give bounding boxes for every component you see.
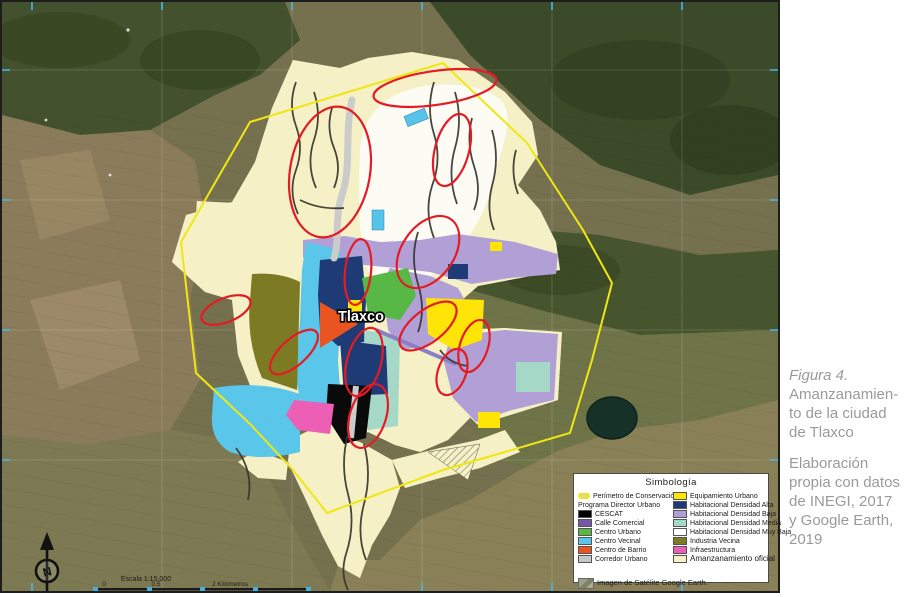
legend-item-label: Habitacional Densidad Baja [690,511,776,518]
legend-item-label: CESCAT [595,511,623,518]
legend-item: Habitacional Densidad Baja [673,510,771,519]
legend-item: Equipamiento Urbano [673,492,771,501]
legend-item: CESCAT [578,510,670,519]
scale-tick-0: 0 [102,581,106,588]
color-swatch [673,546,687,554]
caption-line: de Tlaxco [789,423,905,442]
source-line: de INEGI, 2017 [789,492,905,511]
color-swatch [578,528,592,536]
figure-caption: Figura 4. Amanzanamien- to de la ciudad … [789,366,905,549]
color-swatch [578,555,592,563]
legend-item: Habitacional Densidad Media [673,519,771,528]
scale-unit-label: 2 Kilómetros [212,581,249,588]
color-swatch [673,555,687,563]
scale-text: Escala 1:15,000 [121,576,171,583]
map-figure: Tlaxco N Escala 1:15,000 0 0.5 2 Kilómet… [0,0,780,593]
legend-item-label: Centro Urbano [595,529,641,536]
zone-centro-vecinal-small-2 [372,210,384,230]
legend-box: Simbología Perímetro de Conservación Pro… [573,473,769,583]
color-swatch [673,519,687,527]
color-swatch [673,492,687,500]
legend-item-perimetro: Perímetro de Conservación [578,492,670,501]
source-line: y Google Earth, [789,511,905,530]
legend-satellite-note: Imagen de Satélite Google Earth. [578,578,764,589]
legend-item-label: Centro Vecinal [595,538,641,545]
caption-line: to de la ciudad [789,404,905,423]
legend-item: Calle Comercial [578,519,670,528]
legend-item-label: Infraestructura [690,547,735,554]
legend-item-label: Centro de Barrio [595,547,646,554]
legend-item: Industria Vecina [673,537,771,546]
color-swatch [673,537,687,545]
legend-item: Centro Urbano [578,528,670,537]
legend-item-label: Amanzanamiento oficial [690,555,775,563]
color-swatch [673,501,687,509]
source-line: 2019 [789,530,905,549]
legend-item-label: Corredor Urbano [595,556,648,563]
scale-tick-05: 0.5 [151,581,160,588]
color-swatch [578,537,592,545]
legend-item-label: Equipamiento Urbano [690,493,758,500]
legend-item-label: Perímetro de Conservación [593,493,678,500]
legend-item: Centro de Barrio [578,546,670,555]
legend-item: Centro Vecinal [578,537,670,546]
legend-item-label: Calle Comercial [595,520,644,527]
legend-item: Amanzanamiento oficial [673,555,771,564]
legend-item-label: Industria Vecina [690,538,740,545]
legend-program-heading: Programa Director Urbano [578,501,670,510]
satellite-thumbnail-icon [578,578,594,589]
color-swatch [673,528,687,536]
perimeter-swatch-icon [578,493,590,499]
color-swatch [673,510,687,518]
legend-item: Habitacional Densidad Alta [673,501,771,510]
satellite-note-label: Imagen de Satélite Google Earth. [597,579,708,587]
legend-item: Habitacional Densidad Muy Baja [673,528,771,537]
legend-item-label: Habitacional Densidad Alta [690,502,774,509]
figure-number: Figura 4. [789,366,905,385]
color-swatch [578,546,592,554]
legend-title: Simbología [578,478,764,488]
caption-line: Amanzanamien- [789,385,905,404]
legend-item-label: Habitacional Densidad Muy Baja [690,529,791,536]
color-swatch [578,519,592,527]
color-swatch [578,510,592,518]
pond [587,397,637,439]
legend-item-label: Habitacional Densidad Media [690,520,781,527]
city-label: Tlaxco [338,309,384,325]
source-line: propia con datos [789,473,905,492]
legend-item: Corredor Urbano [578,555,670,564]
source-line: Elaboración [789,454,905,473]
